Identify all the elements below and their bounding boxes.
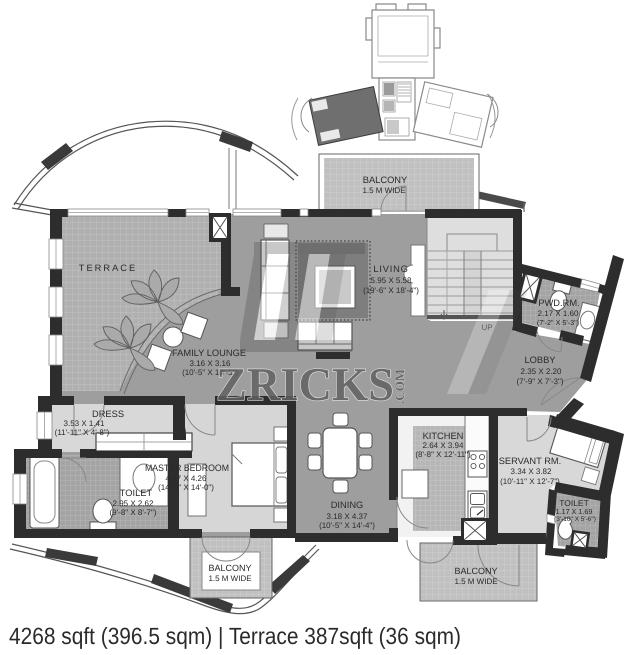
svg-text:(10'-11" X 12'-7"): (10'-11" X 12'-7") bbox=[500, 477, 560, 486]
svg-text:(9'-8" X 8'-7"): (9'-8" X 8'-7") bbox=[110, 508, 157, 517]
svg-text:(19'-6" X 18'-4"): (19'-6" X 18'-4") bbox=[363, 286, 419, 295]
svg-text:BALCONY: BALCONY bbox=[454, 566, 497, 576]
svg-text:(10'-5" X 14'-4"): (10'-5" X 14'-4") bbox=[319, 521, 375, 530]
svg-text:2.17 X 1.60: 2.17 X 1.60 bbox=[538, 309, 579, 318]
svg-text:(7'-2" X 5'-3"): (7'-2" X 5'-3") bbox=[537, 318, 579, 327]
svg-text:KITCHEN: KITCHEN bbox=[423, 431, 464, 441]
svg-text:(3'-10" X 5'-6"): (3'-10" X 5'-6") bbox=[554, 516, 596, 523]
svg-text:DINING: DINING bbox=[331, 500, 364, 510]
svg-text:1.5 M WIDE: 1.5 M WIDE bbox=[362, 186, 405, 195]
svg-text:1.5 M WIDE: 1.5 M WIDE bbox=[454, 577, 497, 586]
svg-text:3.34 X 3.82: 3.34 X 3.82 bbox=[511, 467, 552, 476]
svg-text:1.17 X 1.69: 1.17 X 1.69 bbox=[556, 507, 593, 516]
svg-text:MASTER BEDROOM: MASTER BEDROOM bbox=[145, 463, 229, 473]
svg-text:(8'-8" X 12'-11"): (8'-8" X 12'-11") bbox=[415, 450, 471, 459]
svg-text:1.5 M WIDE: 1.5 M WIDE bbox=[208, 574, 251, 583]
svg-text:2.35 X 2.20: 2.35 X 2.20 bbox=[521, 367, 562, 376]
svg-text:2.64 X 3.94: 2.64 X 3.94 bbox=[423, 441, 464, 450]
svg-text:LOBBY: LOBBY bbox=[524, 355, 555, 365]
svg-text:BALCONY: BALCONY bbox=[363, 175, 407, 185]
svg-text:2.95 X 2.62: 2.95 X 2.62 bbox=[113, 499, 154, 508]
svg-text:TERRACE: TERRACE bbox=[79, 263, 137, 273]
svg-text:BALCONY: BALCONY bbox=[208, 563, 251, 573]
svg-text:3.18 X 4.37: 3.18 X 4.37 bbox=[327, 512, 368, 521]
svg-text:3.16 X 3.16: 3.16 X 3.16 bbox=[190, 359, 231, 368]
svg-text:4268 sqft (396.5 sqm) | Terrac: 4268 sqft (396.5 sqm) | Terrace 387sqft … bbox=[9, 623, 461, 649]
svg-text:(14'-8" X 14'-0"): (14'-8" X 14'-0") bbox=[158, 483, 214, 492]
svg-text:(11'-11" X 4'-8"): (11'-11" X 4'-8") bbox=[55, 428, 110, 437]
svg-text:FAMILY LOUNGE: FAMILY LOUNGE bbox=[172, 348, 246, 358]
svg-text:3.53 X 1.41: 3.53 X 1.41 bbox=[64, 419, 105, 428]
svg-text:DRESS: DRESS bbox=[92, 409, 124, 419]
svg-text:TOILET: TOILET bbox=[120, 488, 153, 498]
svg-text:PWD.RM.: PWD.RM. bbox=[538, 298, 579, 308]
svg-text:LIVING: LIVING bbox=[373, 264, 408, 274]
svg-text:4.47 X 4.26: 4.47 X 4.26 bbox=[166, 474, 207, 483]
svg-text:5.95 X 5.58: 5.95 X 5.58 bbox=[371, 276, 412, 285]
svg-text:SERVANT RM.: SERVANT RM. bbox=[499, 456, 562, 466]
svg-text:(7'-9" X 7'-3"): (7'-9" X 7'-3") bbox=[517, 377, 564, 386]
